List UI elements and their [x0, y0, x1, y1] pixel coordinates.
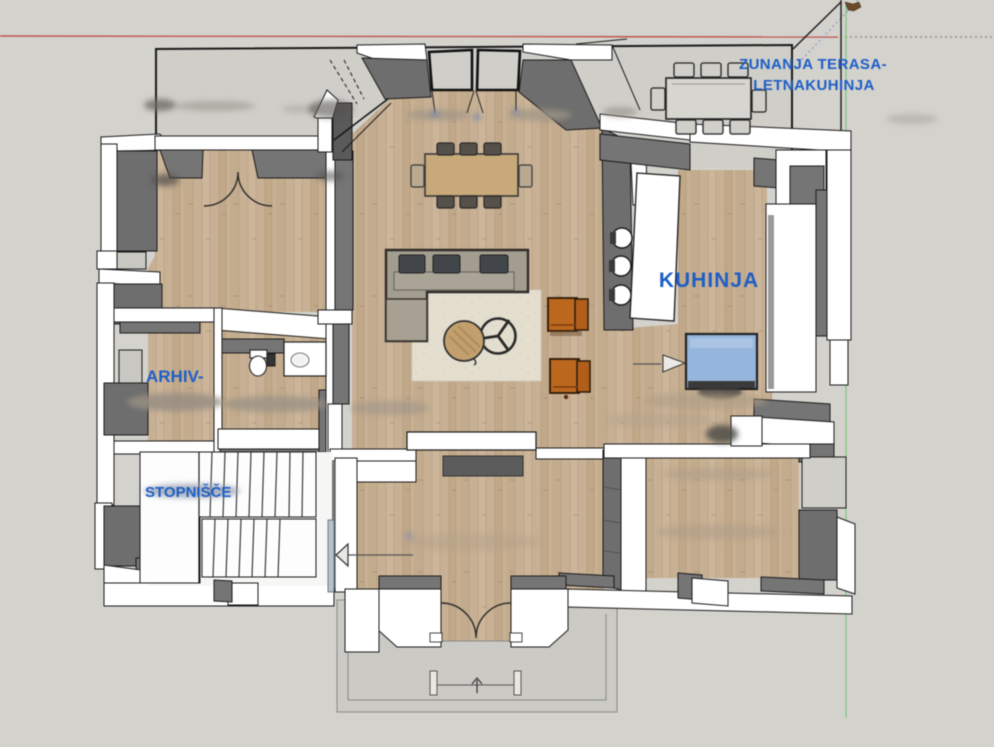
- svg-text:KUHINJA: KUHINJA: [659, 269, 759, 292]
- svg-text:STOPNIŠČE: STOPNIŠČE: [145, 483, 231, 501]
- svg-text:LETNAKUHINJA: LETNAKUHINJA: [753, 77, 874, 94]
- svg-text:ZUNANJA TERASA-: ZUNANJA TERASA-: [739, 56, 887, 73]
- svg-text:ARHIV-: ARHIV-: [146, 367, 204, 386]
